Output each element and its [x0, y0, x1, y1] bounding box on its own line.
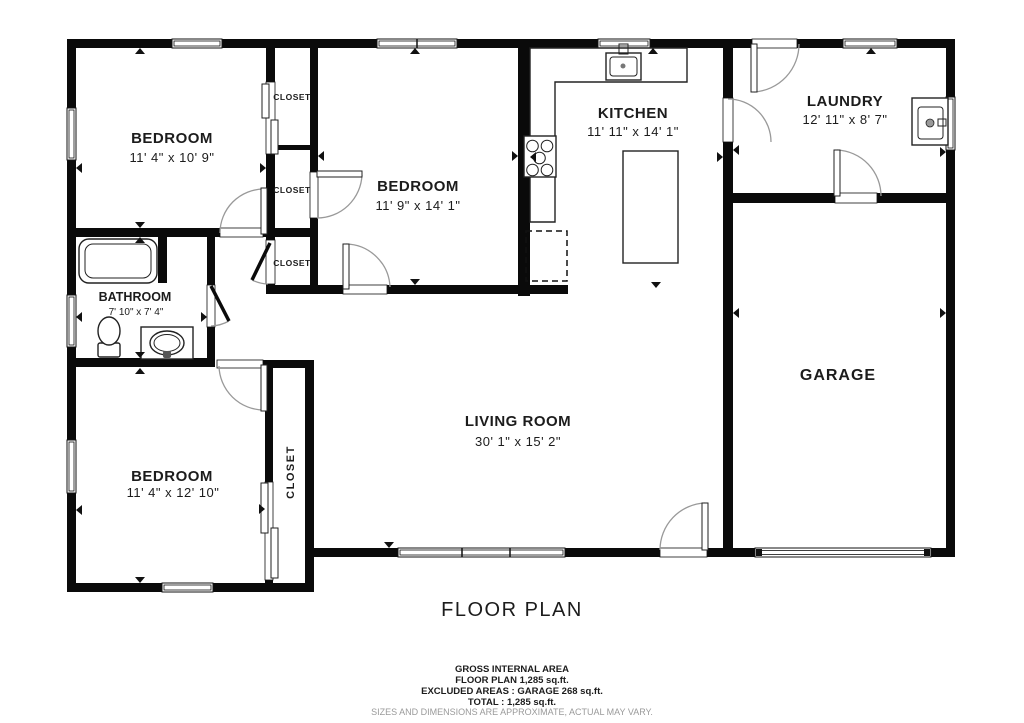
window-laundry-top [843, 39, 897, 48]
closet-label-hall: CLOSET [273, 258, 311, 268]
door-bedroom2 [343, 244, 390, 289]
footer-disclaimer: SIZES AND DIMENSIONS ARE APPROXIMATE, AC… [371, 707, 653, 717]
door-kitchen-laundry [728, 99, 771, 142]
room-dims-laundry: 12' 11" x 8' 7" [802, 112, 887, 127]
door-bedroom1 [220, 188, 267, 234]
footer-floor-plan-area: FLOOR PLAN 1,285 sq.ft. [455, 675, 569, 686]
plan-title: FLOOR PLAN [441, 599, 583, 621]
closet-label-top: CLOSET [273, 92, 311, 102]
room-label-garage: GARAGE [800, 367, 876, 384]
room-dims-bedroom-top-left: 11' 4" x 10' 9" [129, 150, 214, 165]
door-front-entry [660, 503, 708, 550]
room-label-bathroom: BATHROOM [99, 290, 172, 304]
room-label-bedroom-top-left: BEDROOM [131, 130, 213, 147]
room-label-living-room: LIVING ROOM [465, 413, 571, 430]
room-dims-bedroom-middle: 11' 9" x 14' 1" [375, 198, 460, 213]
footer-excluded-areas: EXCLUDED AREAS : GARAGE 268 sq.ft. [421, 686, 603, 697]
window-bedroom1-left [67, 108, 76, 160]
door-closet-middle [317, 171, 362, 218]
window-bathroom-left [67, 295, 76, 347]
room-dims-kitchen: 11' 11" x 14' 1" [587, 124, 679, 139]
room-label-bedroom-bottom-left: BEDROOM [131, 468, 213, 485]
window-bedroom3-left [67, 440, 76, 493]
window-bedroom2-top [377, 39, 457, 48]
bathtub-fixture [79, 239, 157, 283]
footer-gross-area: GROSS INTERNAL AREA [455, 664, 569, 675]
kitchen-island [623, 151, 678, 263]
dimension-markers [76, 48, 946, 583]
window-bedroom3-bottom [162, 583, 213, 592]
room-dims-bedroom-bottom-left: 11' 4" x 12' 10" [127, 485, 220, 500]
stove-fixture [524, 136, 556, 177]
window-bedroom1-top [172, 39, 222, 48]
room-dims-bathroom: 7' 10" x 7' 4" [109, 307, 164, 318]
footer: GROSS INTERNAL AREA FLOOR PLAN 1,285 sq.… [371, 664, 653, 717]
room-label-kitchen: KITCHEN [598, 105, 668, 122]
toilet-fixture [98, 317, 120, 357]
door-laundry-exterior [751, 44, 799, 92]
room-dims-living-room: 30' 1" x 15' 2" [475, 434, 561, 449]
closet-label-middle: CLOSET [273, 185, 311, 195]
laundry-utility-sink [912, 98, 948, 145]
garage-door [755, 548, 931, 557]
room-label-laundry: LAUNDRY [807, 93, 883, 110]
floor-plan-svg: BEDROOM 11' 4" x 10' 9" BEDROOM 11' 9" x… [0, 0, 1024, 723]
floor-plan-page: BEDROOM 11' 4" x 10' 9" BEDROOM 11' 9" x… [0, 0, 1024, 723]
bathroom-vanity-sink [141, 327, 193, 359]
door-laundry-garage [834, 150, 881, 196]
door-bedroom3 [219, 365, 267, 411]
room-label-bedroom-middle: BEDROOM [377, 178, 459, 195]
closet-label-bedroom3: CLOSET [285, 445, 297, 499]
window-living-bottom [398, 548, 565, 557]
dashed-appliance-space [526, 231, 567, 281]
